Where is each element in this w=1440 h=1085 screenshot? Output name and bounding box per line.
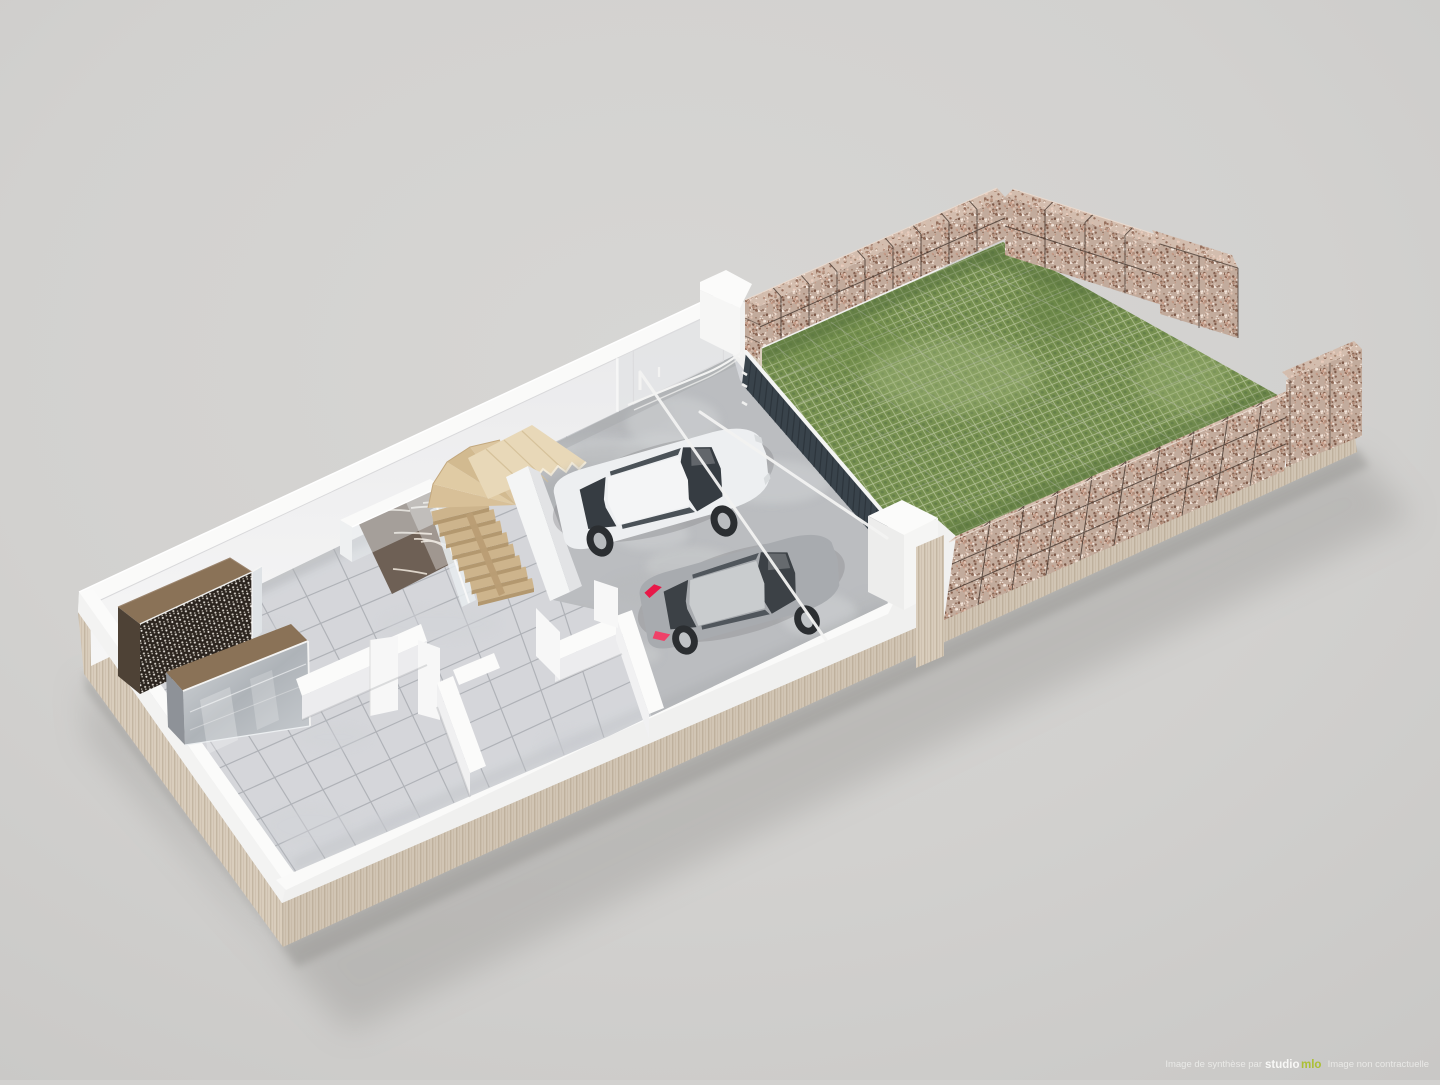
svg-text:Image non contractuelle: Image non contractuelle [1328, 1059, 1429, 1070]
svg-text:studio: studio [1265, 1059, 1300, 1071]
svg-text:mlo: mlo [1301, 1059, 1321, 1071]
svg-text:Image de synthèse par: Image de synthèse par [1165, 1059, 1262, 1070]
